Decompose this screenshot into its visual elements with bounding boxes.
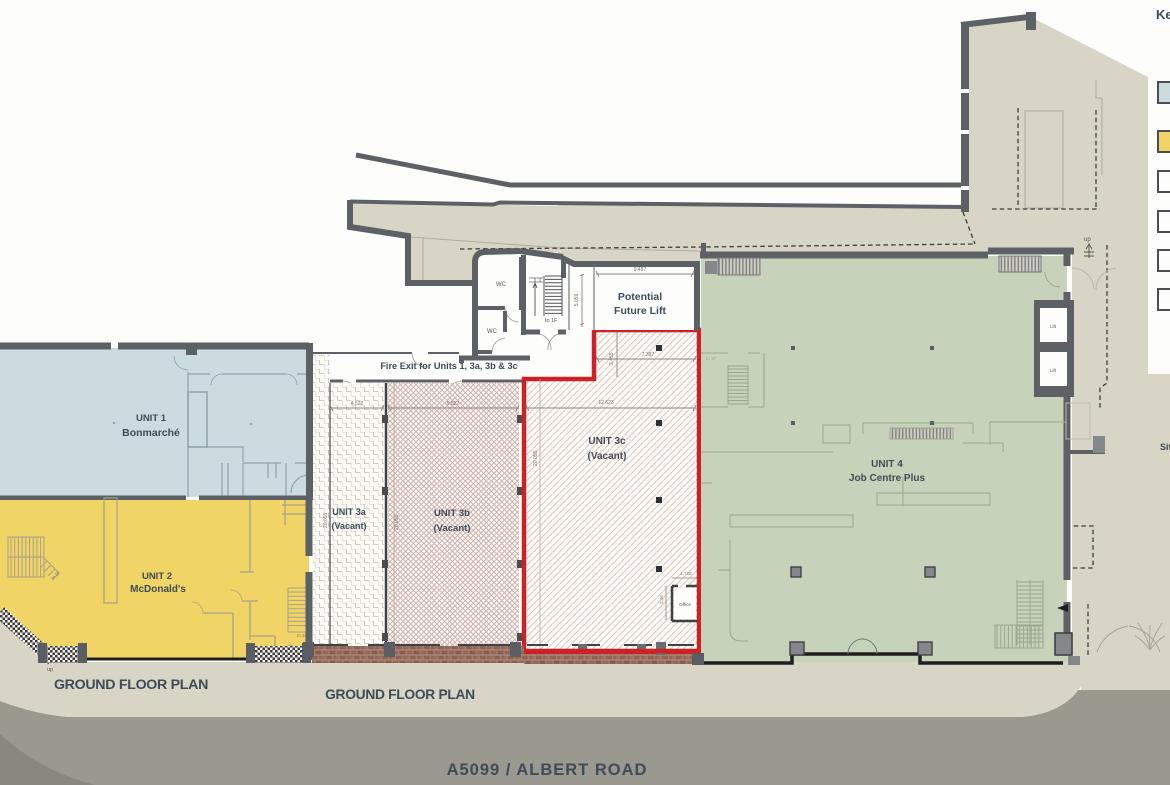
svg-text:GROUND FLOOR PLAN: GROUND FLOOR PLAN [54, 677, 208, 693]
svg-text:WC: WC [487, 329, 498, 335]
svg-text:WC: WC [496, 282, 507, 288]
svg-text:Job Centre Plus: Job Centre Plus [849, 473, 926, 484]
svg-text:to 1F: to 1F [706, 356, 717, 361]
svg-text:UNIT 2: UNIT 2 [142, 571, 172, 582]
svg-text:Fire Exit for Units 1, 3a, 3b: Fire Exit for Units 1, 3a, 3b & 3c [380, 361, 517, 371]
svg-text:Lift: Lift [1050, 368, 1057, 373]
svg-text:UNIT 4: UNIT 4 [871, 459, 903, 470]
svg-text:3.455: 3.455 [609, 352, 615, 365]
svg-text:Potential: Potential [618, 291, 662, 303]
svg-text:UNIT 1: UNIT 1 [136, 413, 167, 424]
svg-text:4.522: 4.522 [351, 401, 364, 407]
svg-text:9.827: 9.827 [447, 401, 460, 407]
svg-text:7.387: 7.387 [642, 352, 655, 358]
svg-text:up: up [47, 667, 53, 673]
svg-text:McDonald's: McDonald's [130, 584, 186, 595]
svg-text:(Vacant): (Vacant) [434, 523, 471, 534]
svg-text:up: up [1084, 237, 1091, 243]
svg-text:(Vacant): (Vacant) [588, 451, 627, 462]
svg-text:(Vacant): (Vacant) [331, 521, 366, 531]
svg-text:1.725: 1.725 [680, 571, 692, 576]
svg-text:Ke: Ke [1156, 7, 1170, 22]
svg-text:Future Lift: Future Lift [614, 305, 666, 317]
svg-text:2.46: 2.46 [659, 595, 664, 604]
svg-text:UNIT 3c: UNIT 3c [588, 436, 626, 447]
svg-text:Office: Office [679, 602, 691, 607]
svg-text:Sit: Sit [1160, 442, 1170, 452]
svg-text:to 1F: to 1F [545, 318, 558, 324]
svg-text:20.055: 20.055 [533, 450, 539, 466]
svg-text:UNIT 3b: UNIT 3b [434, 508, 470, 519]
svg-text:Bonmarché: Bonmarché [122, 427, 180, 439]
svg-text:5.059: 5.059 [574, 294, 580, 307]
svg-text:A5099 / ALBERT ROAD: A5099 / ALBERT ROAD [447, 761, 648, 779]
svg-text:UNIT 3a: UNIT 3a [332, 507, 367, 517]
svg-text:9.487: 9.487 [634, 267, 647, 273]
svg-text:Lift: Lift [1050, 324, 1057, 329]
svg-text:12.623: 12.623 [598, 400, 614, 406]
svg-text:20.055: 20.055 [323, 512, 329, 528]
svg-text:20.055: 20.055 [394, 514, 400, 530]
svg-text:GROUND FLOOR PLAN: GROUND FLOOR PLAN [325, 687, 475, 702]
